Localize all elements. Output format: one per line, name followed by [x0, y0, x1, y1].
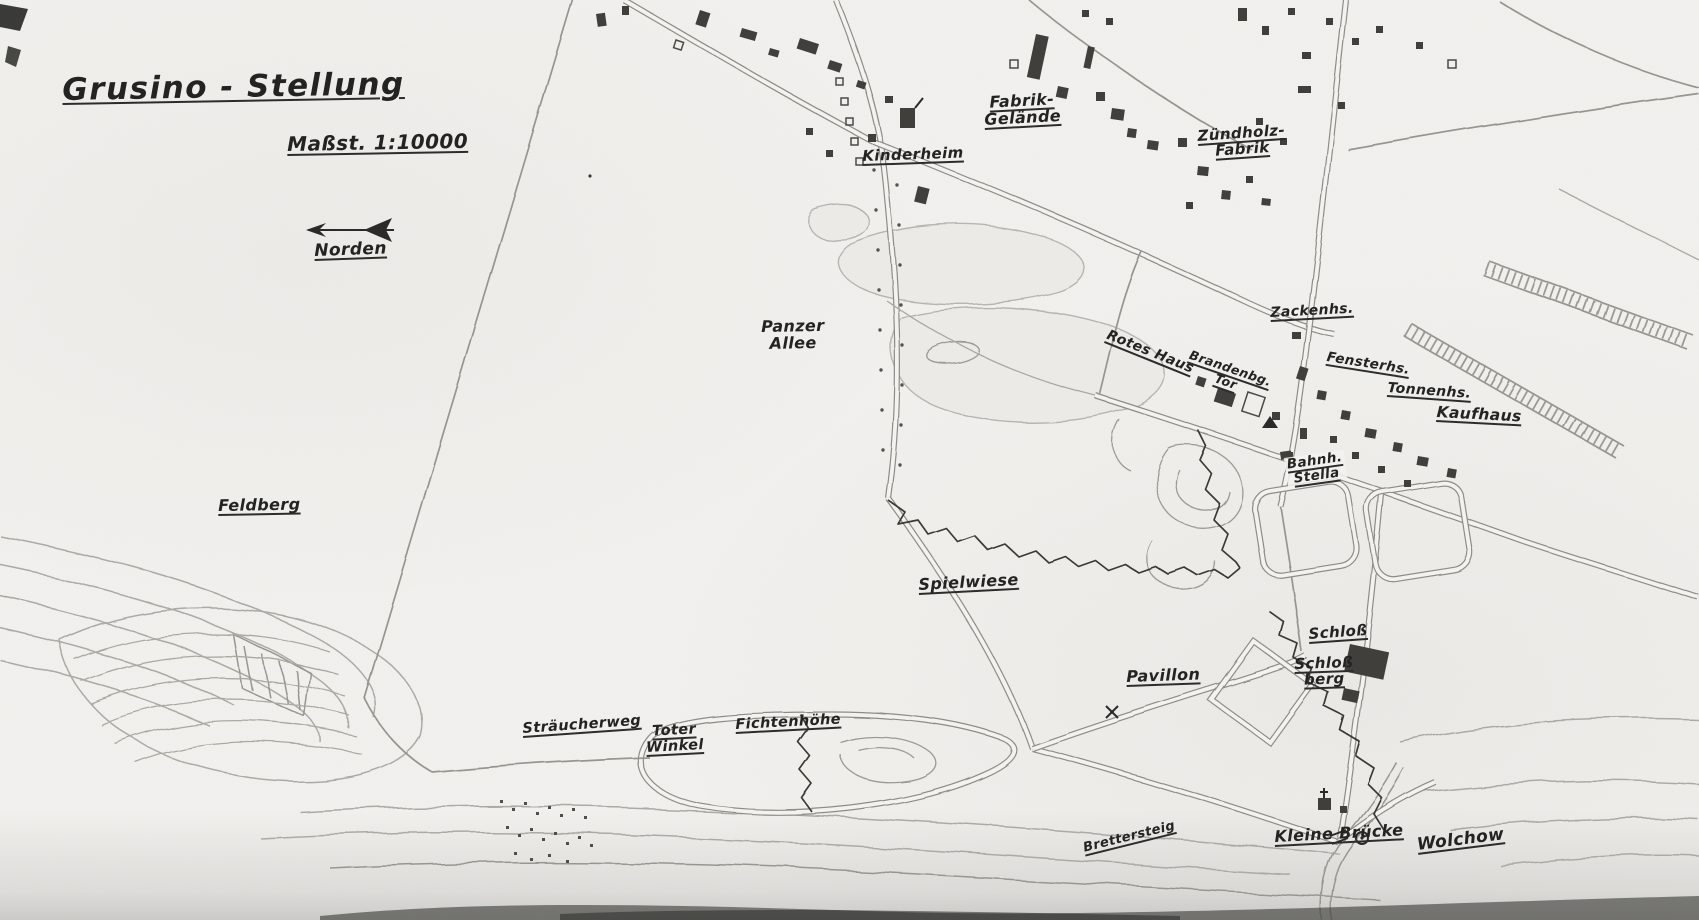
map-drawing	[0, 0, 1699, 920]
map-canvas: Grusino - Stellung Maßst. 1:10000 Norden…	[0, 0, 1699, 920]
paper-texture	[0, 0, 1699, 920]
